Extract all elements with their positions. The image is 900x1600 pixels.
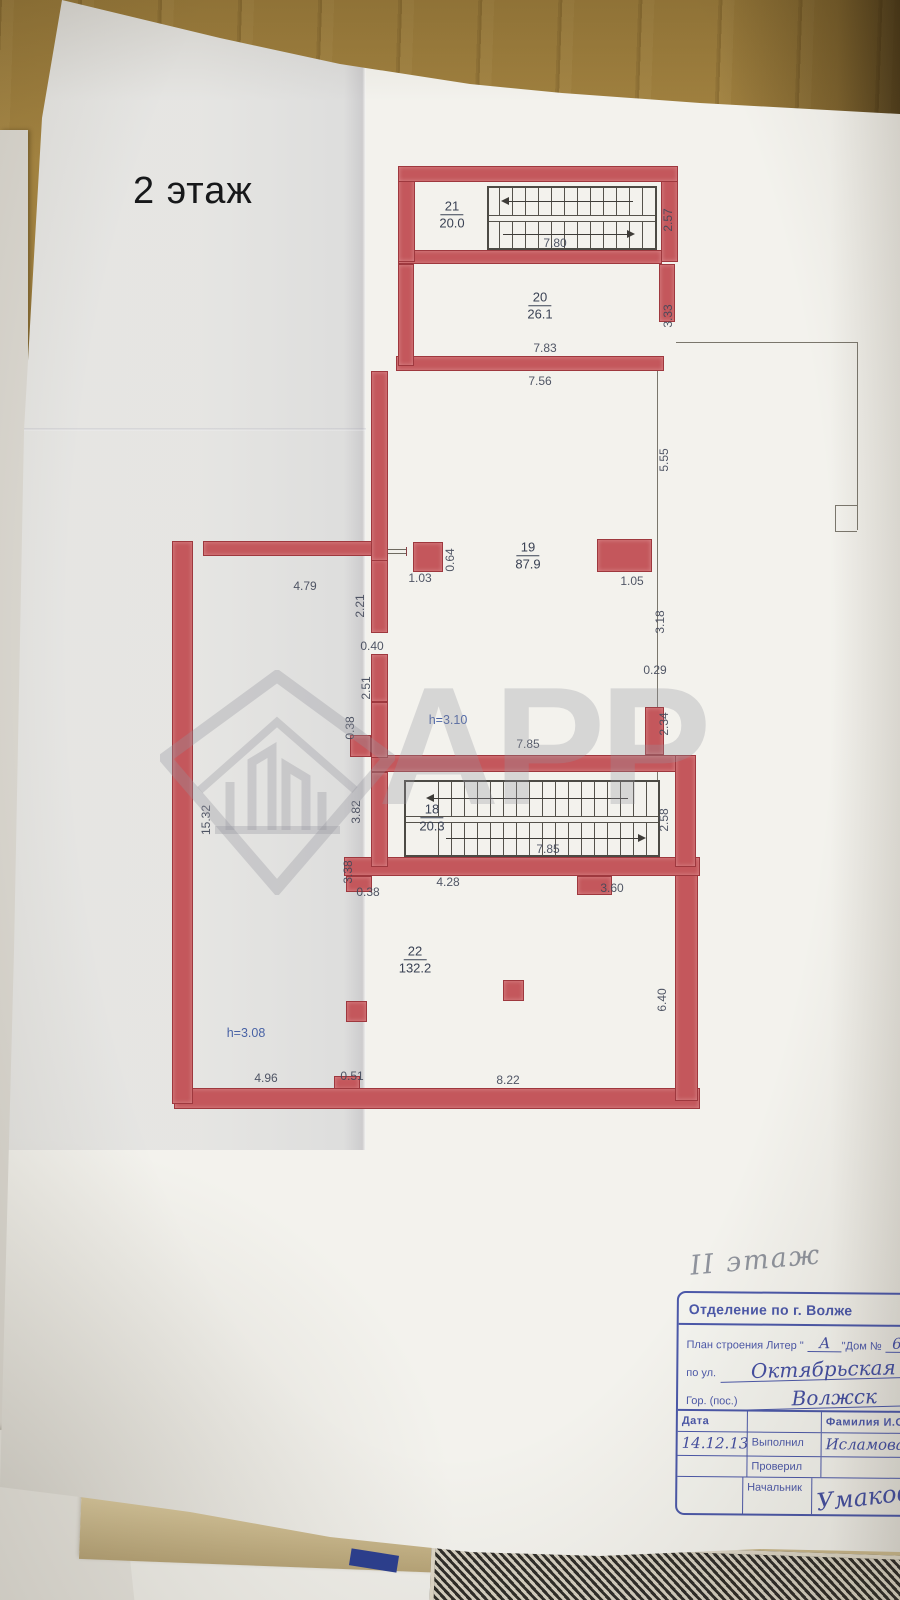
room-number: 21: [441, 198, 463, 215]
done-label: Выполнил: [748, 1433, 822, 1457]
dimension-label: 3.60: [600, 881, 623, 895]
structure-line: [835, 531, 857, 532]
room-number: 20: [529, 289, 551, 306]
wall-segment: [503, 980, 524, 1001]
stair-direction-arrow: [503, 201, 633, 202]
room-area: 20.3: [419, 819, 444, 835]
dimension-label: 15.32: [199, 805, 213, 835]
wall-segment: [371, 772, 388, 867]
wall-segment: [396, 356, 664, 371]
structure-line: [857, 342, 858, 530]
structure-line: [835, 505, 857, 506]
dimension-label: 6.40: [655, 988, 669, 1011]
stamp-header: Отделение по г. Волже: [679, 1293, 900, 1327]
wall-segment: [371, 654, 388, 702]
dimension-label: 2.51: [359, 676, 373, 699]
dimension-label: 0.40: [360, 639, 383, 653]
dimension-label: 3.18: [653, 610, 667, 633]
stamp-row-street: по ул. Октябрьская: [678, 1353, 900, 1383]
photo-of-floor-plan-document: 2 этаж 7.802.577.837.563.335.551.053.180…: [0, 0, 900, 1600]
empty-cell: [748, 1412, 822, 1433]
dimension-label: 7.85: [536, 842, 559, 856]
dimension-label: 2.21: [353, 594, 367, 617]
room-area: 132.2: [399, 961, 432, 977]
dimension-label: 7.85: [516, 737, 539, 751]
city-value: Волжск: [741, 1385, 900, 1411]
staircase-upper: [487, 186, 657, 250]
wall-segment: [398, 264, 414, 366]
dimension-label: 7.83: [533, 341, 556, 355]
wall-segment: [172, 541, 193, 1104]
room-label: 2120.0: [439, 198, 464, 232]
room-number: 18: [421, 801, 443, 818]
wall-segment: [344, 857, 700, 876]
ceiling-height-label: h=3.10: [429, 713, 468, 727]
wall-segment: [371, 755, 676, 772]
stamp-row-building: План строения Литер " А "Дом № 62а: [678, 1325, 900, 1355]
stair-landing-rail: [489, 215, 655, 222]
dimension-label: 0.38: [343, 716, 357, 739]
dimension-label: 3.33: [661, 304, 675, 327]
room-number: 22: [404, 943, 426, 960]
checked-label: Проверил: [747, 1457, 821, 1478]
wall-segment: [203, 541, 379, 556]
stamp-row-chief: Начальник Умакова: [677, 1477, 900, 1515]
wall-segment: [371, 559, 388, 633]
dimension-label: 2.34: [657, 712, 671, 735]
dimension-label: 1.03: [408, 571, 431, 585]
chief-label: Начальник: [743, 1477, 813, 1514]
structure-line: [835, 505, 836, 532]
dimension-label: 2.58: [657, 808, 671, 831]
chief-signature: Умакова: [811, 1472, 900, 1521]
stamp-row-checked: Проверил: [677, 1456, 900, 1479]
room-number: 19: [517, 539, 539, 556]
stamp-row-done: 14.12.13 Выполнил Исламова и: [678, 1432, 900, 1458]
stair-direction-arrow: [428, 798, 628, 799]
dimension-label: 4.79: [293, 579, 316, 593]
wall-segment: [675, 755, 696, 867]
empty-cell: [677, 1477, 743, 1514]
date-header: Дата: [678, 1411, 748, 1432]
plan-sheet: 2 этаж 7.802.577.837.563.335.551.053.180…: [0, 0, 900, 1600]
dimension-label: 0.29: [643, 663, 666, 677]
room-label: 1987.9: [515, 539, 540, 573]
wall-segment: [597, 539, 652, 572]
room-label: 2026.1: [527, 289, 552, 323]
stamp-row-city: Гор. (пос.) Волжск: [678, 1381, 900, 1411]
stair-direction-arrow: [446, 838, 644, 839]
dimension-label: 4.28: [436, 875, 459, 889]
stair-direction-arrow: [503, 234, 633, 235]
room-area: 26.1: [527, 307, 552, 323]
done-by-signature: Исламова и: [822, 1433, 900, 1457]
dimension-label: 3.38: [341, 860, 355, 883]
plan-of-building-label: План строения Литер ": [686, 1339, 807, 1352]
wall-segment: [346, 1001, 367, 1022]
litera-value: А: [808, 1336, 842, 1352]
wall-segment: [398, 166, 678, 182]
dimension-label: 7.56: [528, 374, 551, 388]
dimension-label: 2.57: [661, 208, 675, 231]
dimension-label: 7.80: [543, 236, 566, 250]
wall-segment: [398, 250, 662, 264]
room-area: 87.9: [515, 557, 540, 573]
empty-cell: [821, 1457, 900, 1478]
room-area: 20.0: [439, 216, 464, 232]
date-value: 14.12.13: [678, 1432, 748, 1456]
city-label: Гор. (пос.): [686, 1395, 742, 1407]
wall-segment: [371, 371, 388, 561]
dimension-label: 4.96: [254, 1071, 277, 1085]
wall-segment: [371, 702, 388, 758]
dimension-label: 8.22: [496, 1073, 519, 1087]
street-value: Октябрьская: [720, 1356, 900, 1382]
bti-stamp: Отделение по г. Волже План строения Лите…: [675, 1291, 900, 1517]
wall-segment: [174, 1088, 700, 1109]
house-number-value: 62а: [886, 1337, 900, 1353]
house-number-label: "Дом №: [842, 1340, 886, 1352]
dimension-label: 0.64: [443, 548, 457, 571]
room-label: 1820.3: [419, 801, 444, 835]
dimension-label: 3.82: [349, 800, 363, 823]
wall-segment: [675, 867, 698, 1101]
structure-line: [676, 342, 858, 343]
stamp-table: Дата Фамилия И.О 14.12.13 Выполнил Ислам…: [677, 1409, 900, 1515]
dimension-label: 0.51: [340, 1069, 363, 1083]
dimension-label: 5.55: [657, 448, 671, 471]
dimension-label: 0.38: [356, 885, 379, 899]
empty-cell: [677, 1456, 747, 1477]
wall-segment: [413, 542, 443, 572]
ceiling-height-label: h=3.08: [227, 1026, 266, 1040]
street-label: по ул.: [686, 1367, 720, 1379]
stamp-table-header: Дата Фамилия И.О: [678, 1411, 900, 1434]
dimension-label: 1.05: [620, 574, 643, 588]
room-label: 22132.2: [399, 943, 432, 977]
name-header: Фамилия И.О: [822, 1412, 900, 1433]
